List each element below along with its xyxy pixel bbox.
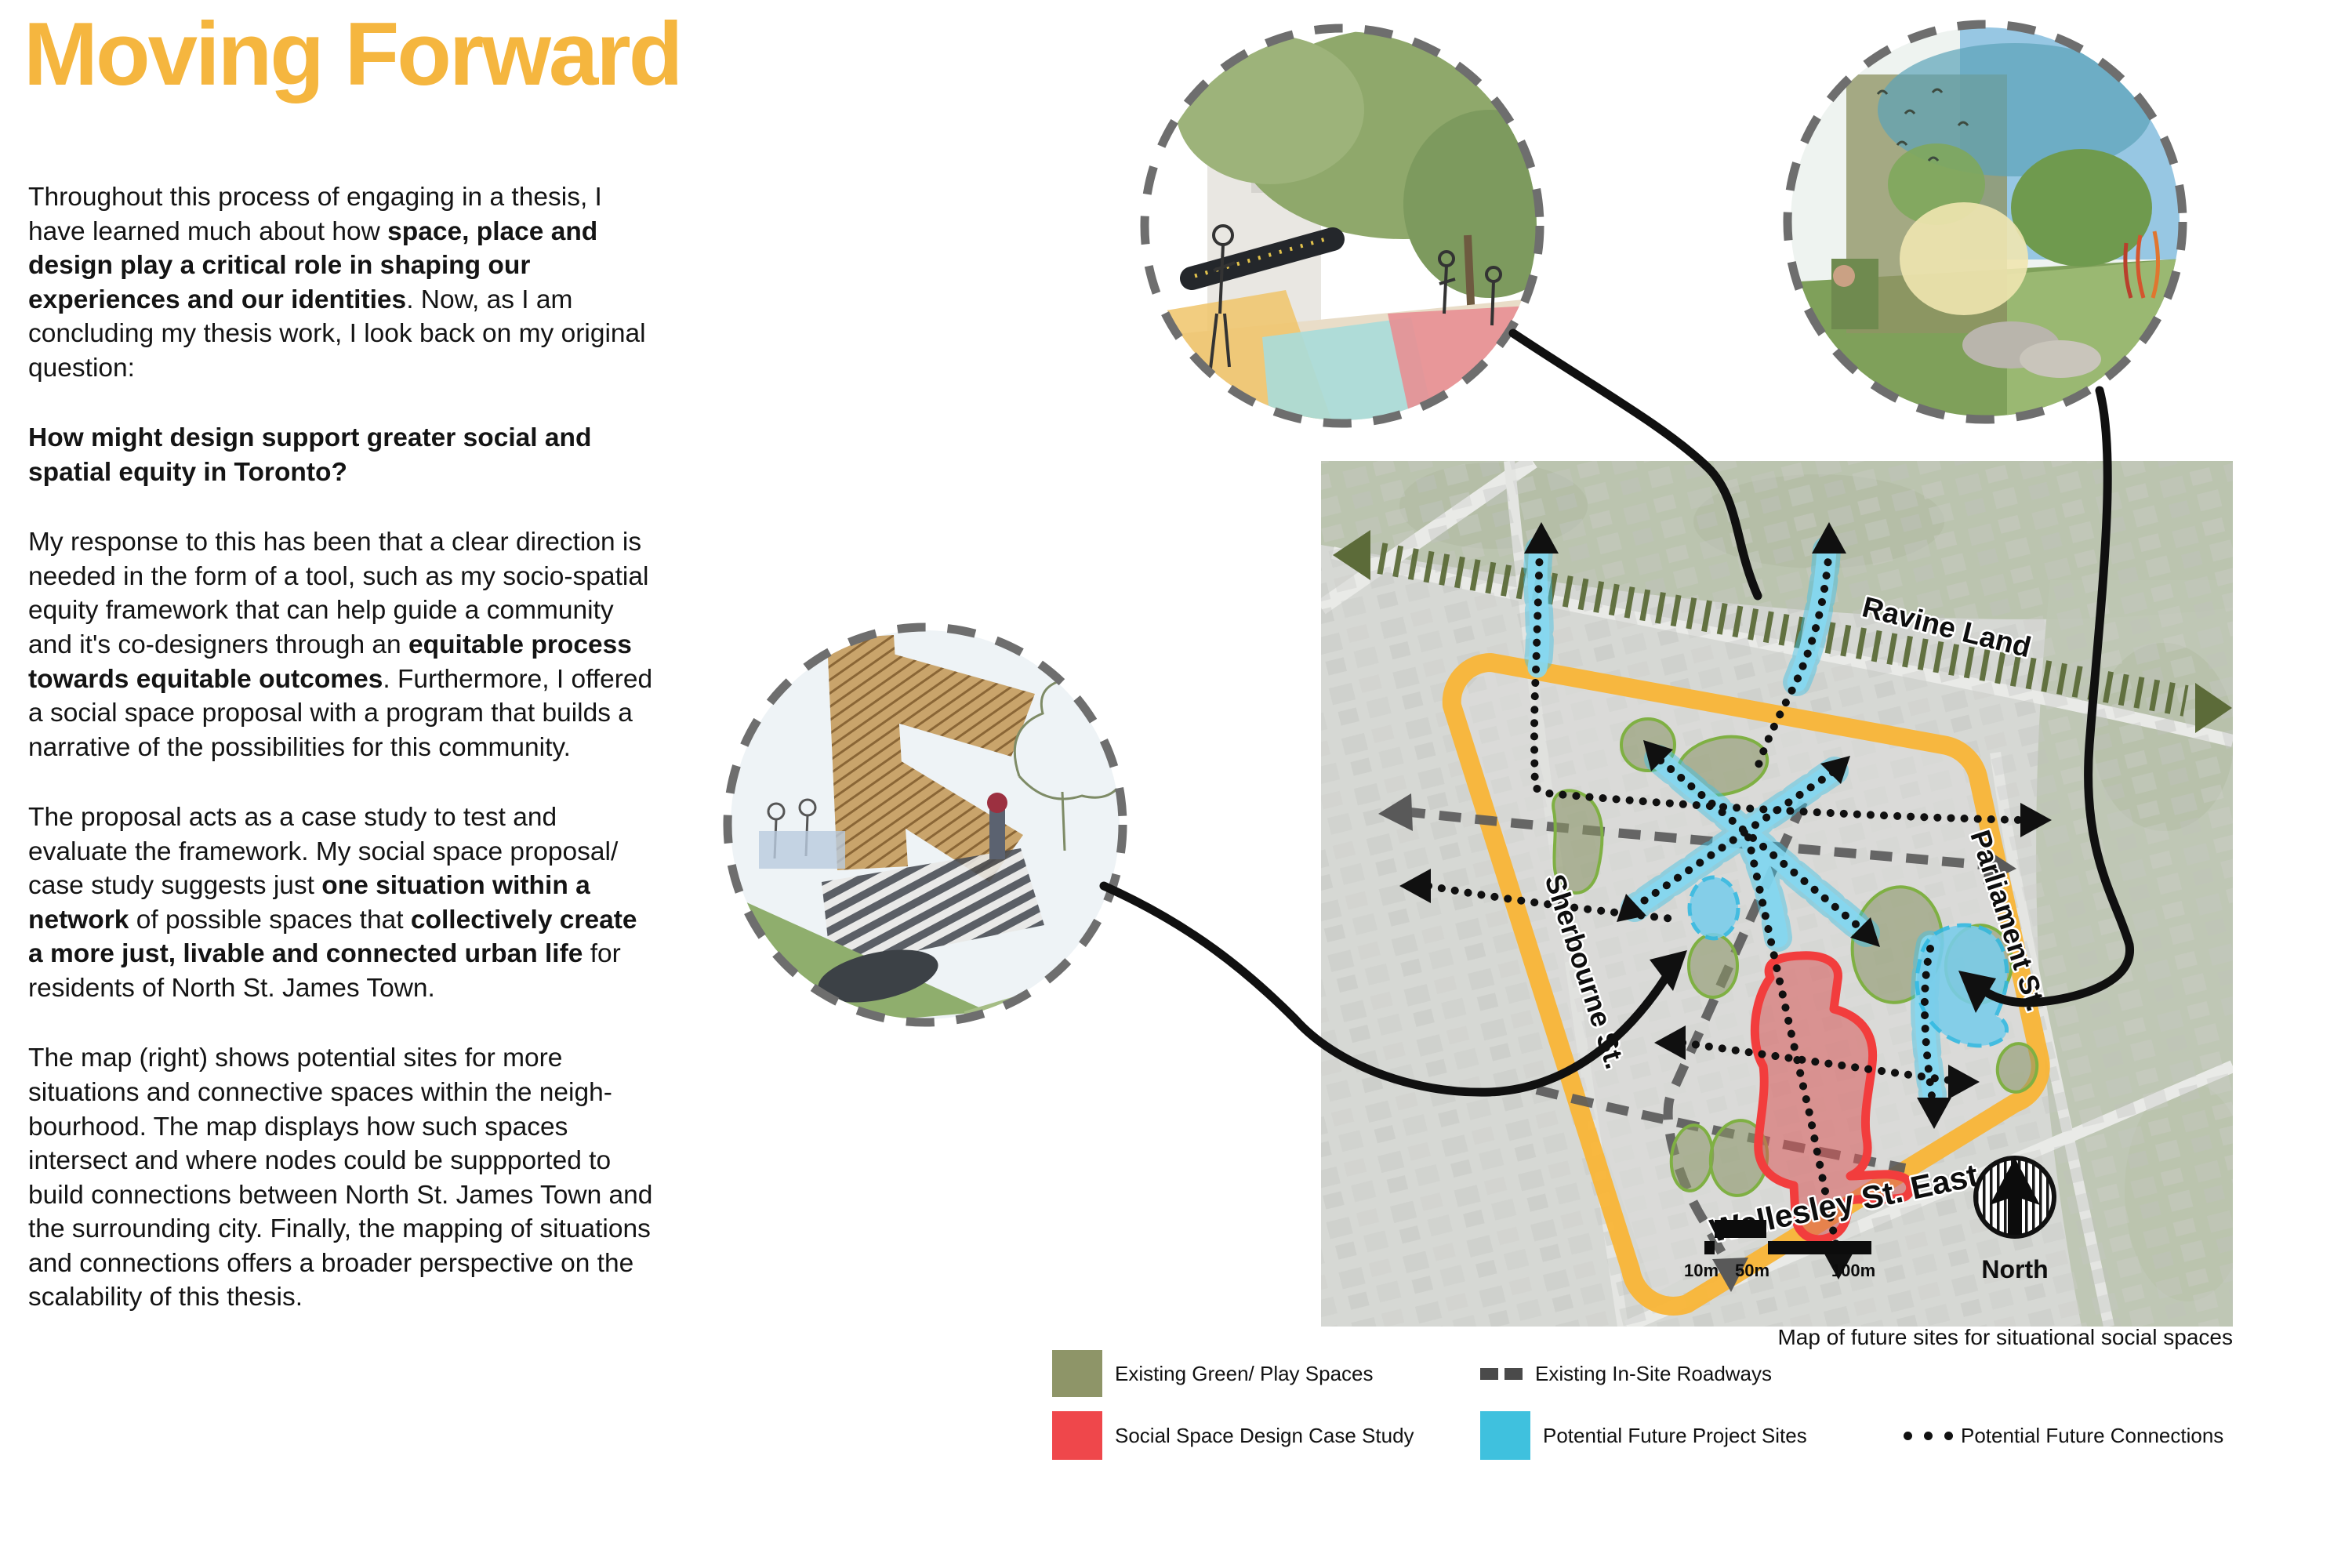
scale-label-100m: 100m [1831, 1261, 1875, 1280]
callout-street-situation [1145, 27, 1576, 423]
scale-label-50m: 50m [1735, 1261, 1769, 1280]
callout-park-situation [1788, 24, 2183, 419]
future-site-blob-small [1690, 877, 1738, 938]
north-arrow-icon: North [1976, 1158, 2054, 1283]
map-caption: Map of future sites for situational soci… [1490, 1325, 2233, 1350]
callout-pavilion-situation [728, 627, 1145, 1022]
thesis-poster-page: { "page": { "title": "Moving Forward" },… [0, 0, 2352, 1568]
north-label: North [1981, 1255, 2048, 1283]
scale-label-10m: 10m [1684, 1261, 1719, 1280]
